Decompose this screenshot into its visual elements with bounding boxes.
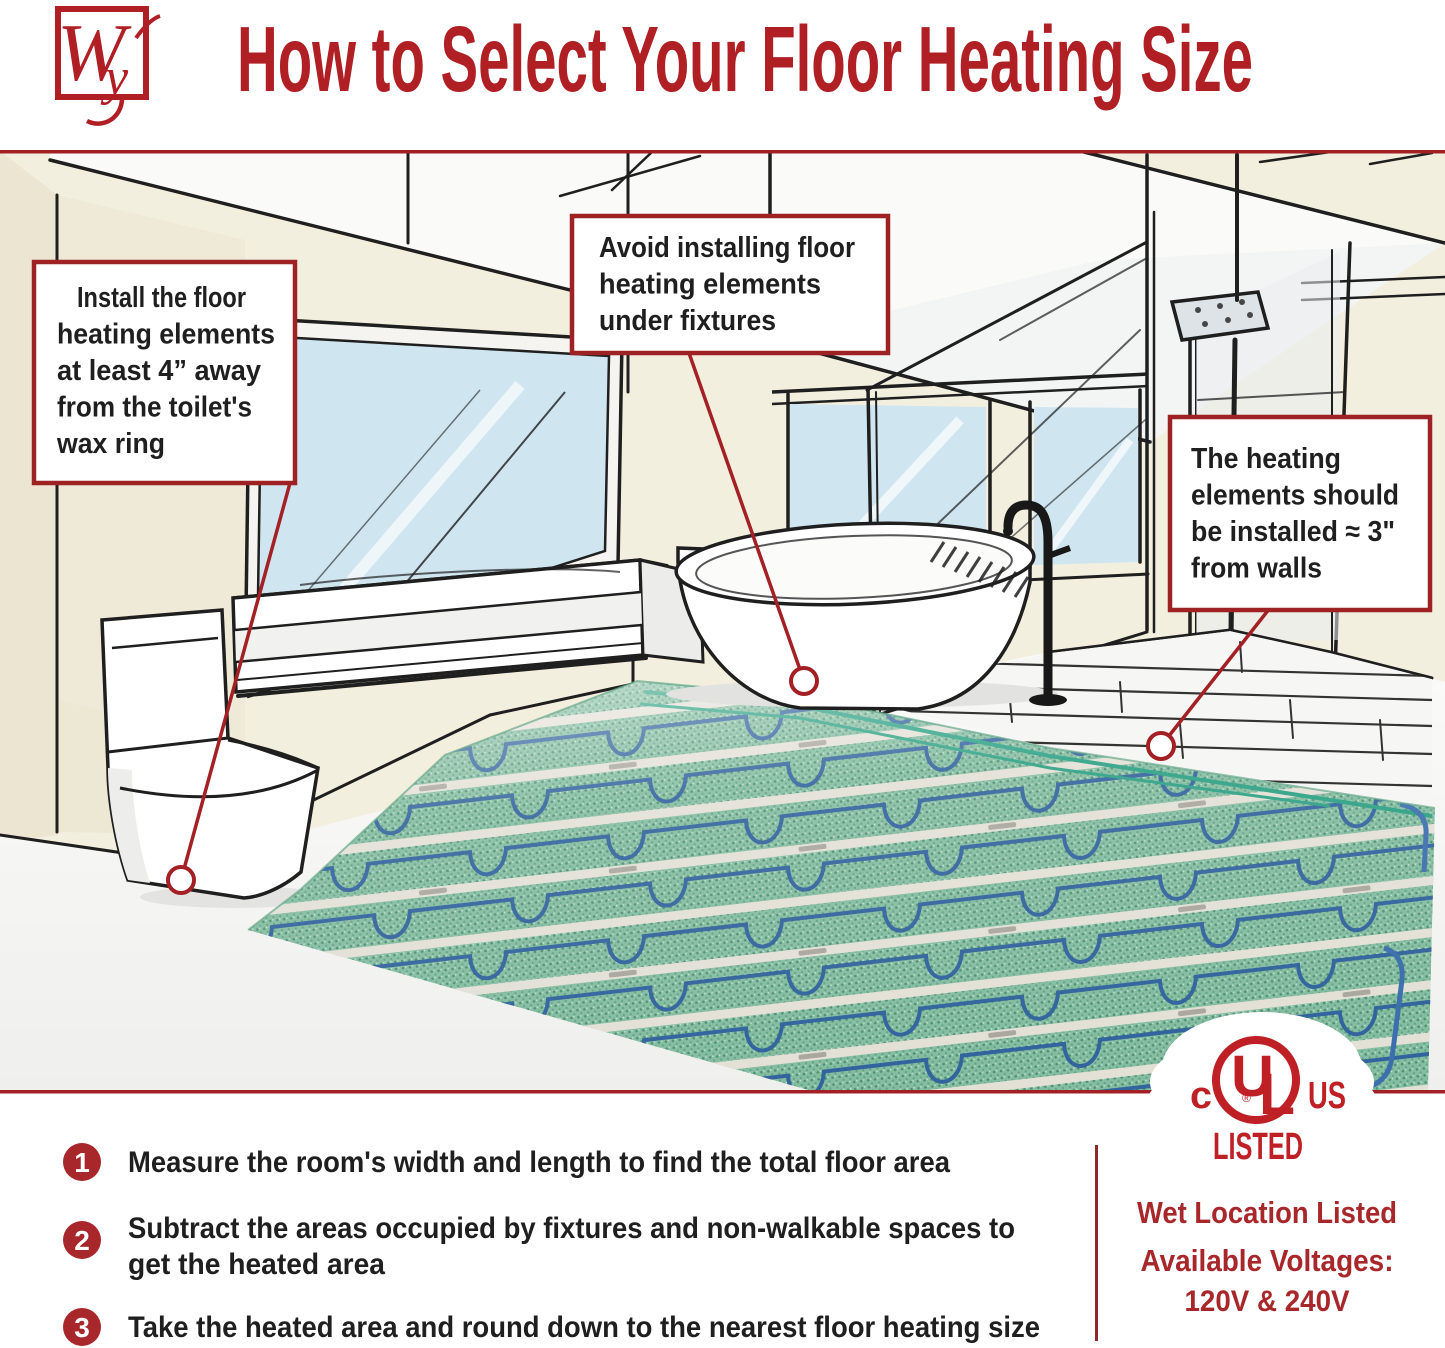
svg-text:L: L <box>1259 1062 1295 1127</box>
svg-text:®: ® <box>1242 1091 1251 1105</box>
svg-text:3: 3 <box>74 1312 90 1343</box>
svg-text:elements should: elements should <box>1191 480 1399 512</box>
svg-text:y: y <box>100 49 129 106</box>
svg-text:How to Select Your Floor Heati: How to Select Your Floor Heating Size <box>237 7 1253 111</box>
svg-text:The heating: The heating <box>1191 443 1341 475</box>
svg-text:wax ring: wax ring <box>56 428 165 460</box>
svg-text:heating elements: heating elements <box>599 269 821 301</box>
svg-text:heating elements: heating elements <box>57 319 275 351</box>
svg-text:be installed ≈ 3": be installed ≈ 3" <box>1191 516 1395 548</box>
svg-text:2: 2 <box>74 1225 90 1256</box>
svg-text:Available Voltages:: Available Voltages: <box>1141 1243 1394 1278</box>
svg-text:Subtract the areas occupied by: Subtract the areas occupied by fixtures … <box>128 1212 1015 1245</box>
svg-text:Take the heated area and round: Take the heated area and round down to t… <box>128 1311 1040 1344</box>
svg-text:from the toilet's: from the toilet's <box>57 392 252 424</box>
svg-text:at least 4” away: at least 4” away <box>57 355 261 387</box>
svg-text:under fixtures: under fixtures <box>599 305 776 337</box>
svg-text:1: 1 <box>74 1147 90 1178</box>
svg-text:LISTED: LISTED <box>1213 1126 1303 1168</box>
svg-text:US: US <box>1308 1075 1346 1117</box>
svg-text:Wet Location Listed: Wet Location Listed <box>1137 1195 1397 1230</box>
svg-text:get the heated area: get the heated area <box>128 1248 385 1281</box>
svg-text:120V & 240V: 120V & 240V <box>1185 1285 1350 1318</box>
svg-text:Avoid installing floor: Avoid installing floor <box>599 232 855 264</box>
svg-text:c: c <box>1190 1075 1212 1117</box>
svg-text:from walls: from walls <box>1191 553 1322 585</box>
svg-text:Install the floor: Install the floor <box>77 282 246 314</box>
svg-text:Measure the room's width and l: Measure the room's width and length to f… <box>128 1146 950 1179</box>
